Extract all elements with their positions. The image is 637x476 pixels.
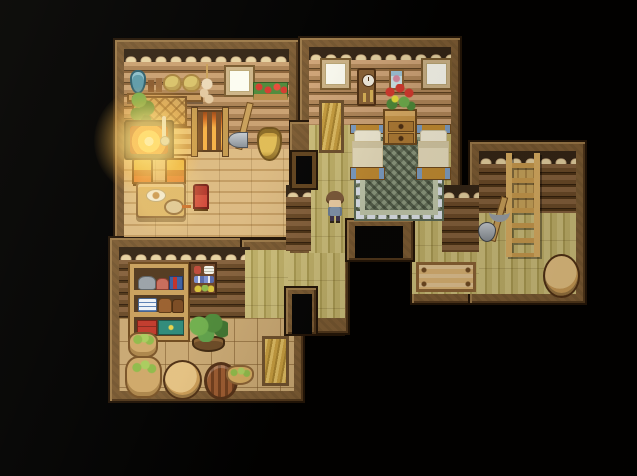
veggie-planter bbox=[189, 314, 228, 352]
ladle bbox=[162, 116, 166, 140]
bed[interactable] bbox=[416, 124, 449, 180]
pink-pot bbox=[156, 278, 169, 290]
character-feet bbox=[330, 221, 334, 223]
hay-nook[interactable] bbox=[262, 336, 289, 386]
kitchen-plate-row bbox=[124, 49, 289, 62]
chair bbox=[132, 158, 153, 184]
wall-ladder[interactable] bbox=[506, 153, 540, 257]
annex-wall bbox=[442, 185, 480, 252]
south-doorway-opening bbox=[355, 226, 403, 258]
hall-doorway-opening bbox=[292, 294, 312, 334]
storage-crate[interactable] bbox=[416, 262, 476, 292]
frying-pan bbox=[164, 199, 184, 215]
stone-sack bbox=[138, 276, 156, 290]
character-shirt bbox=[328, 207, 342, 216]
plate-stack bbox=[138, 298, 157, 312]
bedroom-door[interactable] bbox=[319, 100, 344, 153]
storage-barrel[interactable] bbox=[543, 254, 580, 298]
fruit-basket bbox=[226, 365, 254, 385]
bedroom-plate-row bbox=[309, 47, 451, 60]
dresser[interactable] bbox=[383, 109, 417, 145]
hall-doorway[interactable] bbox=[284, 286, 318, 336]
game-viewport[interactable]: Pixel-art interior map of a wooden house… bbox=[0, 0, 637, 476]
fire-grate bbox=[196, 110, 224, 152]
produce-sack bbox=[128, 332, 158, 358]
teal-chest bbox=[158, 320, 184, 335]
kitchen-doorway[interactable] bbox=[292, 152, 316, 188]
dining-table[interactable] bbox=[136, 182, 186, 218]
bedroom-window bbox=[423, 60, 450, 88]
pantry-plate-row bbox=[119, 247, 250, 260]
plate-stack bbox=[204, 266, 214, 274]
chair bbox=[165, 158, 186, 184]
cuckoo-clock bbox=[357, 68, 376, 106]
wall-shelf[interactable] bbox=[189, 262, 217, 295]
bread-loaf bbox=[182, 74, 201, 92]
gift-box bbox=[169, 276, 183, 290]
pantry-barrel[interactable] bbox=[163, 360, 202, 400]
plate-of-food bbox=[146, 189, 166, 202]
bottles bbox=[194, 276, 214, 283]
clay-pot bbox=[172, 299, 184, 313]
bed[interactable] bbox=[350, 124, 383, 180]
annex-plate-row bbox=[442, 185, 480, 198]
kitchen-window bbox=[226, 67, 253, 95]
clay-pot bbox=[158, 298, 172, 313]
axe-icon bbox=[228, 102, 254, 154]
pantry-shelf[interactable] bbox=[130, 264, 188, 340]
garlic-strand bbox=[200, 64, 214, 106]
hallway-wall-face bbox=[286, 185, 311, 251]
red-jar bbox=[194, 266, 201, 274]
fruits bbox=[194, 285, 214, 292]
bread-loaf bbox=[163, 74, 182, 92]
bedroom-window bbox=[322, 60, 349, 88]
shovel-pickaxe-icon bbox=[476, 196, 510, 248]
small-red-chair bbox=[193, 184, 209, 209]
produce-sack bbox=[125, 356, 162, 398]
south-doorway[interactable] bbox=[345, 218, 415, 262]
flower-vase bbox=[384, 84, 416, 112]
player-character[interactable] bbox=[326, 191, 344, 223]
flower-box bbox=[253, 82, 288, 100]
